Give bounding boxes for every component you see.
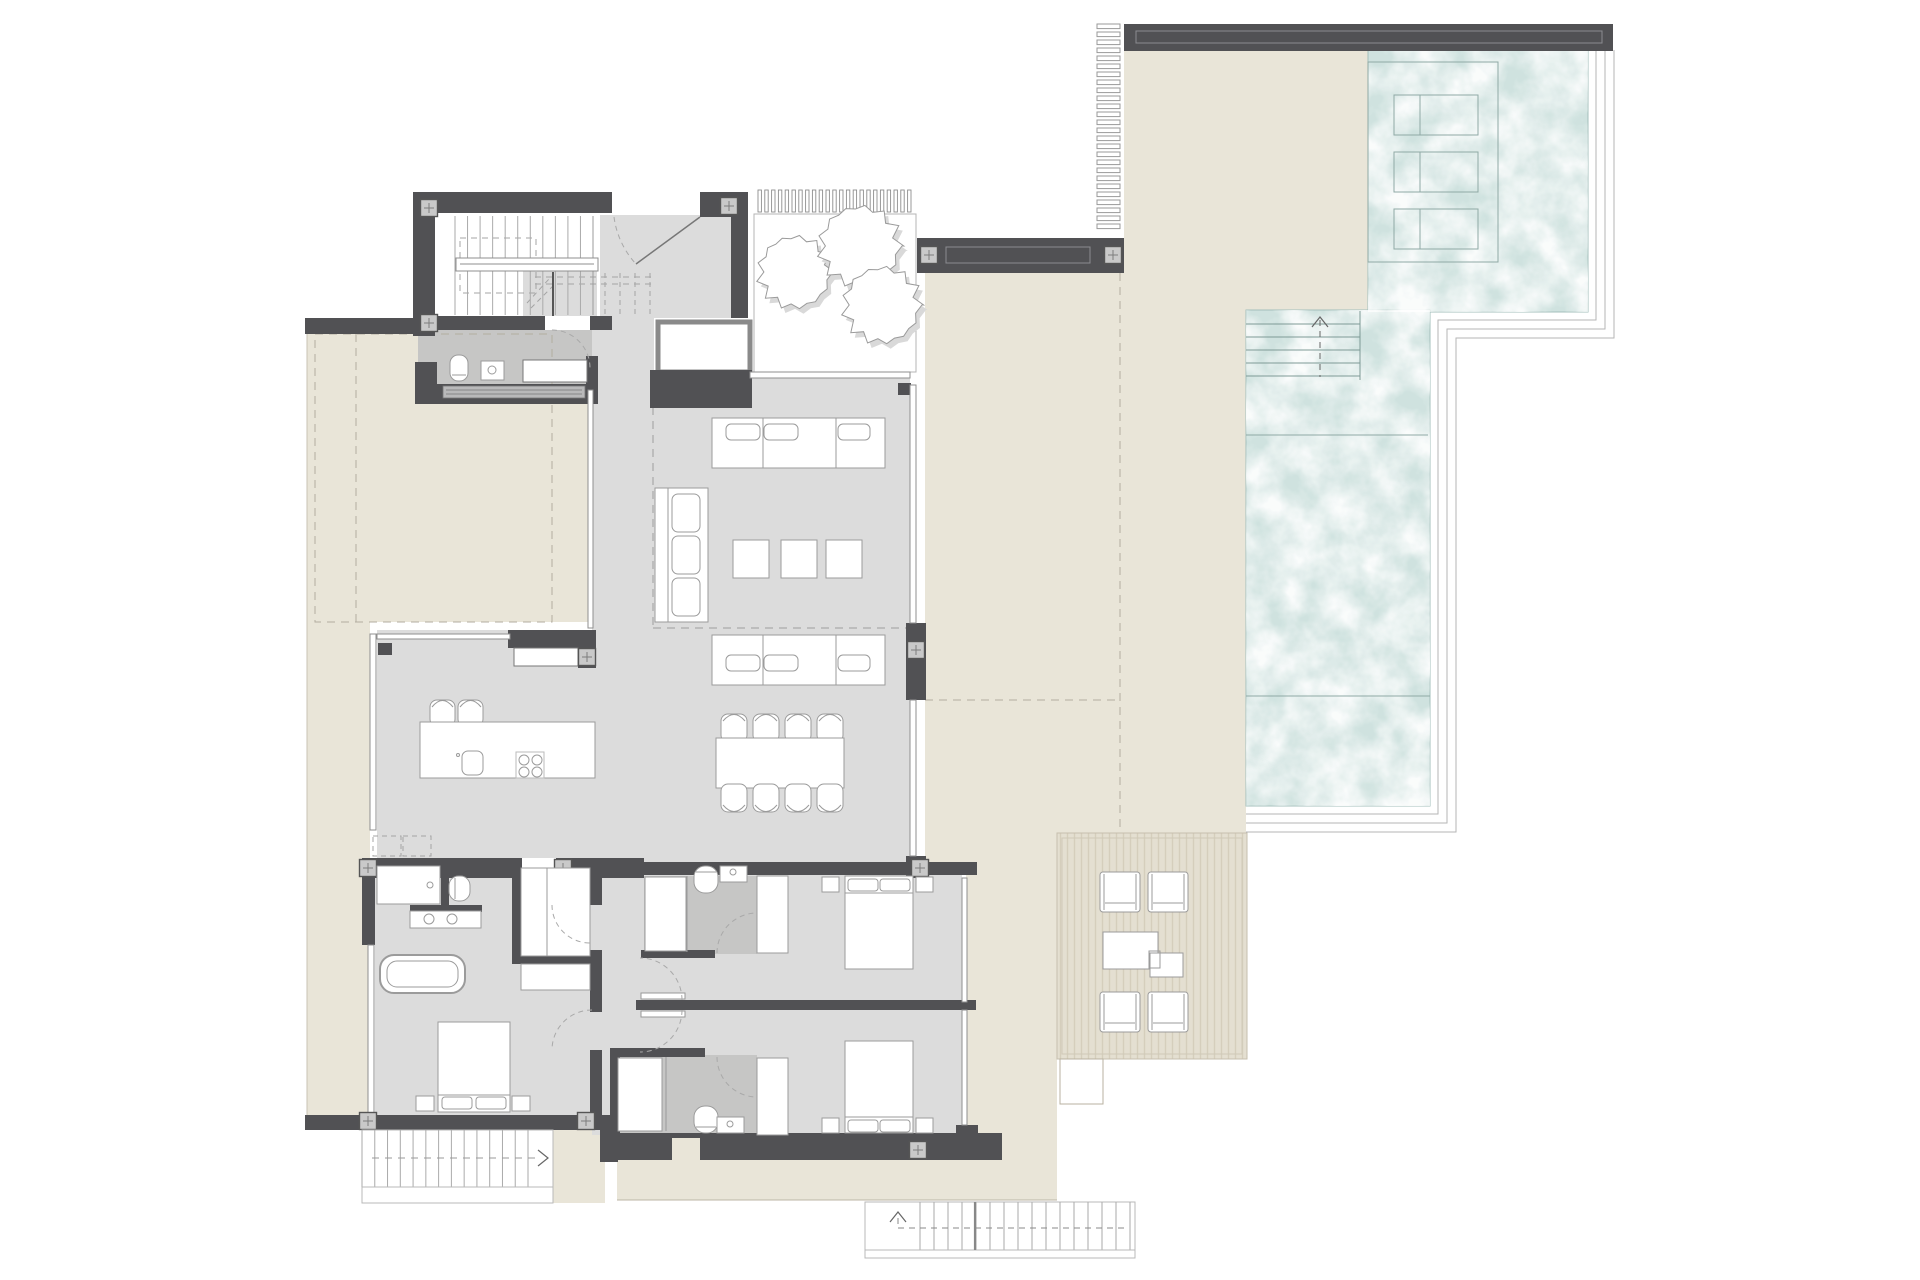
sofa-cushion — [726, 424, 760, 440]
sofa-cushion — [838, 655, 870, 671]
kitchen-island — [420, 722, 595, 778]
outdoor-armchair — [1100, 992, 1140, 1032]
nightstand — [512, 1096, 530, 1111]
louver-screen-horizontal — [833, 190, 836, 212]
closet — [521, 964, 590, 990]
fireplace-surround — [658, 322, 750, 372]
nightstand — [916, 877, 933, 892]
louver-screen-horizontal — [778, 190, 781, 212]
nightstand — [916, 1118, 933, 1133]
wall — [415, 362, 437, 404]
louver-screen-vertical — [1097, 168, 1120, 173]
louver-screen-vertical — [1097, 88, 1120, 93]
louver-screen-vertical — [1097, 80, 1120, 85]
louver-screen-horizontal — [874, 190, 877, 212]
louver-screen-vertical — [1097, 184, 1120, 189]
sofa-cushion — [764, 424, 798, 440]
bed-pillow — [848, 879, 878, 891]
louver-screen-vertical — [1097, 48, 1120, 53]
window — [962, 1010, 967, 1125]
toilet — [449, 876, 470, 901]
bed-pillow — [880, 1120, 910, 1132]
louver-screen-vertical — [1097, 32, 1120, 37]
bed-pillow — [848, 1120, 878, 1132]
louver-screen-vertical — [1097, 96, 1120, 101]
louver-screen-vertical — [1097, 160, 1120, 165]
duct — [378, 643, 392, 655]
louver-screen-horizontal — [819, 190, 822, 212]
louver-screen-vertical — [1097, 56, 1120, 61]
outdoor-armchair — [1100, 872, 1140, 912]
window — [370, 634, 376, 830]
toilet — [694, 866, 718, 893]
wall — [441, 865, 449, 905]
wall — [956, 1125, 978, 1135]
wall — [610, 1048, 705, 1057]
pergola-beam-mid — [917, 238, 1124, 273]
window — [750, 372, 910, 378]
wall — [590, 316, 612, 330]
louver-screen-vertical — [1097, 104, 1120, 109]
wall — [600, 1128, 618, 1162]
louver-screen-horizontal — [908, 190, 911, 212]
louver-screen-vertical — [1097, 192, 1120, 197]
terrace-southwest-patch — [553, 1128, 605, 1203]
terrace-northeast — [1124, 50, 1368, 312]
louver-screen-vertical — [1097, 64, 1120, 69]
wall — [906, 623, 926, 700]
kitchen-tall-unit — [514, 648, 578, 666]
louver-screen-horizontal — [887, 190, 890, 212]
louver-screen-vertical — [1097, 176, 1120, 181]
dining-table — [716, 738, 844, 788]
outdoor-table — [1150, 953, 1183, 977]
louver-screen-vertical — [1097, 128, 1120, 133]
louver-screen-horizontal — [758, 190, 761, 212]
wall — [305, 318, 415, 334]
window — [377, 634, 510, 639]
window — [910, 385, 916, 623]
sofa-cushion — [726, 655, 760, 671]
washbasin — [717, 1117, 744, 1133]
louver-screen-horizontal — [840, 190, 843, 212]
louver-screen-horizontal — [799, 190, 802, 212]
louver-screen-horizontal — [785, 190, 788, 212]
toilet — [694, 1106, 718, 1133]
terrace-south-strip — [617, 1160, 1057, 1200]
closet — [521, 868, 590, 956]
door-threshold — [672, 1138, 700, 1160]
closet — [757, 1058, 788, 1135]
bed-pillow — [476, 1097, 506, 1109]
washbasin — [481, 361, 504, 380]
toilet — [450, 355, 468, 381]
shower-tray — [618, 1058, 662, 1131]
wall — [508, 630, 596, 648]
louver-screen-vertical — [1097, 208, 1120, 213]
island-sink — [462, 751, 483, 775]
floor-plan-canvas — [0, 0, 1920, 1280]
balcony-stair-outline — [362, 1130, 553, 1203]
louver-screen-vertical — [1097, 72, 1120, 77]
wall — [636, 1000, 976, 1010]
window — [368, 945, 374, 1115]
sofa-cushion — [764, 655, 798, 671]
louver-screen-vertical — [1097, 224, 1120, 229]
terrace-east-fill — [925, 833, 966, 862]
louver-screen-horizontal — [765, 190, 768, 212]
sofa-cushion — [838, 424, 870, 440]
deck-steps — [1060, 1059, 1103, 1104]
louver-screen-vertical — [1097, 120, 1120, 125]
sofa-cushion — [672, 578, 700, 616]
wall — [512, 868, 521, 960]
bed3 — [845, 1041, 913, 1133]
wall — [610, 1133, 1002, 1160]
washbasin — [720, 866, 747, 882]
louver-screen-horizontal — [826, 190, 829, 212]
terrace-east-lower — [925, 806, 1246, 833]
terrace-east — [925, 273, 1246, 806]
wall — [898, 383, 911, 395]
wall — [362, 878, 375, 945]
door-leaf — [641, 993, 685, 999]
louver-screen-vertical — [1097, 136, 1120, 141]
coffee-table — [826, 540, 862, 578]
wall — [731, 217, 748, 318]
shower-tray — [377, 866, 440, 904]
louver-screen-vertical — [1097, 200, 1120, 205]
door-leaf — [641, 1011, 685, 1017]
louver-screen-vertical — [1097, 144, 1120, 149]
closet — [757, 876, 788, 953]
terrace-east-side — [966, 833, 1057, 1160]
pergola-beam-north — [1124, 24, 1613, 51]
wall — [590, 950, 602, 1012]
louver-screen-horizontal — [901, 190, 904, 212]
pool-water-texture-lower — [1246, 310, 1430, 806]
coffee-table — [781, 540, 817, 578]
louver-screen-horizontal — [812, 190, 815, 212]
nightstand — [822, 1118, 839, 1133]
sofa-cushion — [672, 536, 700, 574]
wall — [590, 860, 602, 905]
vent-grille — [443, 386, 585, 398]
outdoor-armchair — [1148, 992, 1188, 1032]
window — [962, 878, 967, 1002]
shower-tray — [645, 877, 686, 951]
louver-screen-vertical — [1097, 40, 1120, 45]
wall — [590, 1050, 602, 1115]
louver-screen-horizontal — [772, 190, 775, 212]
floor-plan-page — [0, 0, 1920, 1280]
fireplace-block — [650, 370, 752, 408]
louver-screen-vertical — [1097, 24, 1120, 29]
nightstand — [416, 1096, 434, 1111]
louver-screen-horizontal — [792, 190, 795, 212]
louver-screen-horizontal — [880, 190, 883, 212]
vanity — [410, 911, 481, 928]
bed-pillow — [880, 879, 910, 891]
entry-bench — [523, 360, 587, 382]
outdoor-armchair — [1148, 872, 1188, 912]
louver-screen-horizontal — [894, 190, 897, 212]
louver-screen-vertical — [1097, 216, 1120, 221]
louver-screen-vertical — [1097, 152, 1120, 157]
sofa-cushion — [672, 494, 700, 532]
nightstand — [822, 877, 839, 892]
bed-pillow — [442, 1097, 472, 1109]
coffee-table — [733, 540, 769, 578]
louver-screen-horizontal — [806, 190, 809, 212]
louver-screen-vertical — [1097, 112, 1120, 117]
wall — [413, 192, 612, 213]
window — [588, 390, 593, 628]
window — [910, 700, 916, 856]
wall — [305, 1115, 617, 1130]
